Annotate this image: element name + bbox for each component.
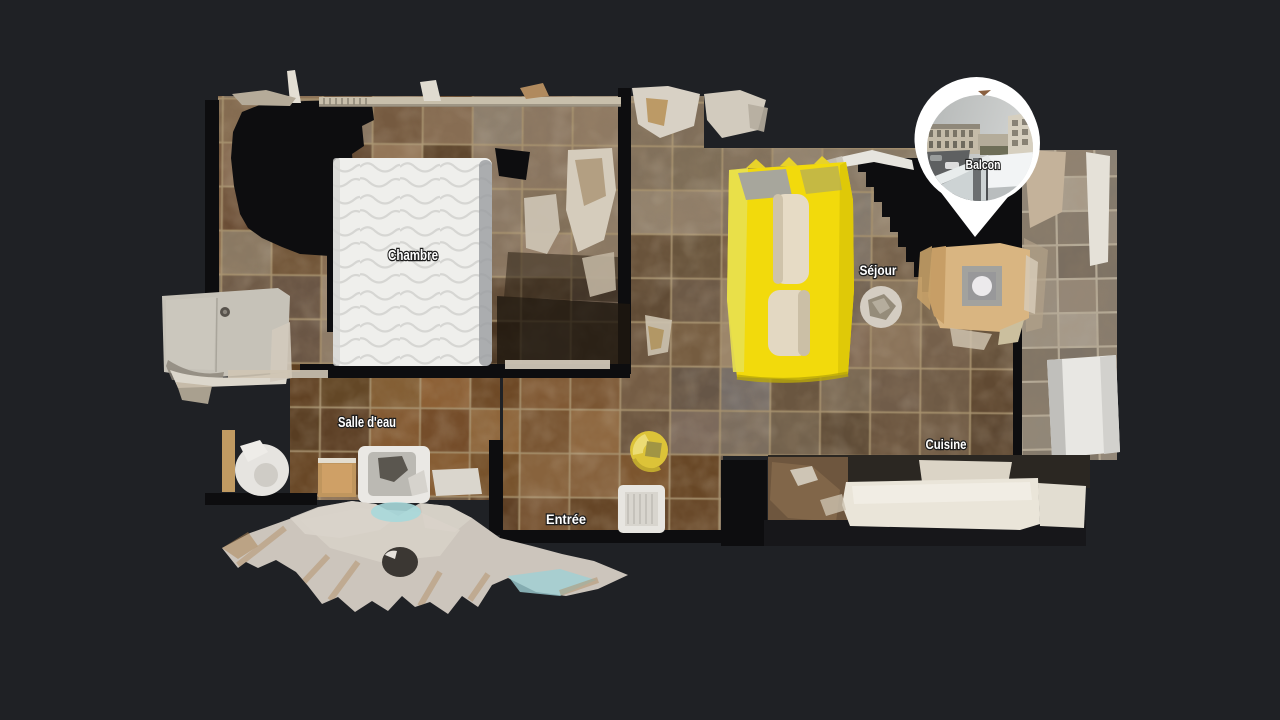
- svg-text:Chambre: Chambre: [388, 247, 438, 264]
- svg-text:Cuisine: Cuisine: [926, 436, 967, 452]
- svg-text:Entrée: Entrée: [546, 511, 586, 527]
- svg-text:Séjour: Séjour: [860, 262, 897, 278]
- svg-text:Balcon: Balcon: [966, 158, 1001, 172]
- svg-text:Salle d'eau: Salle d'eau: [338, 415, 396, 431]
